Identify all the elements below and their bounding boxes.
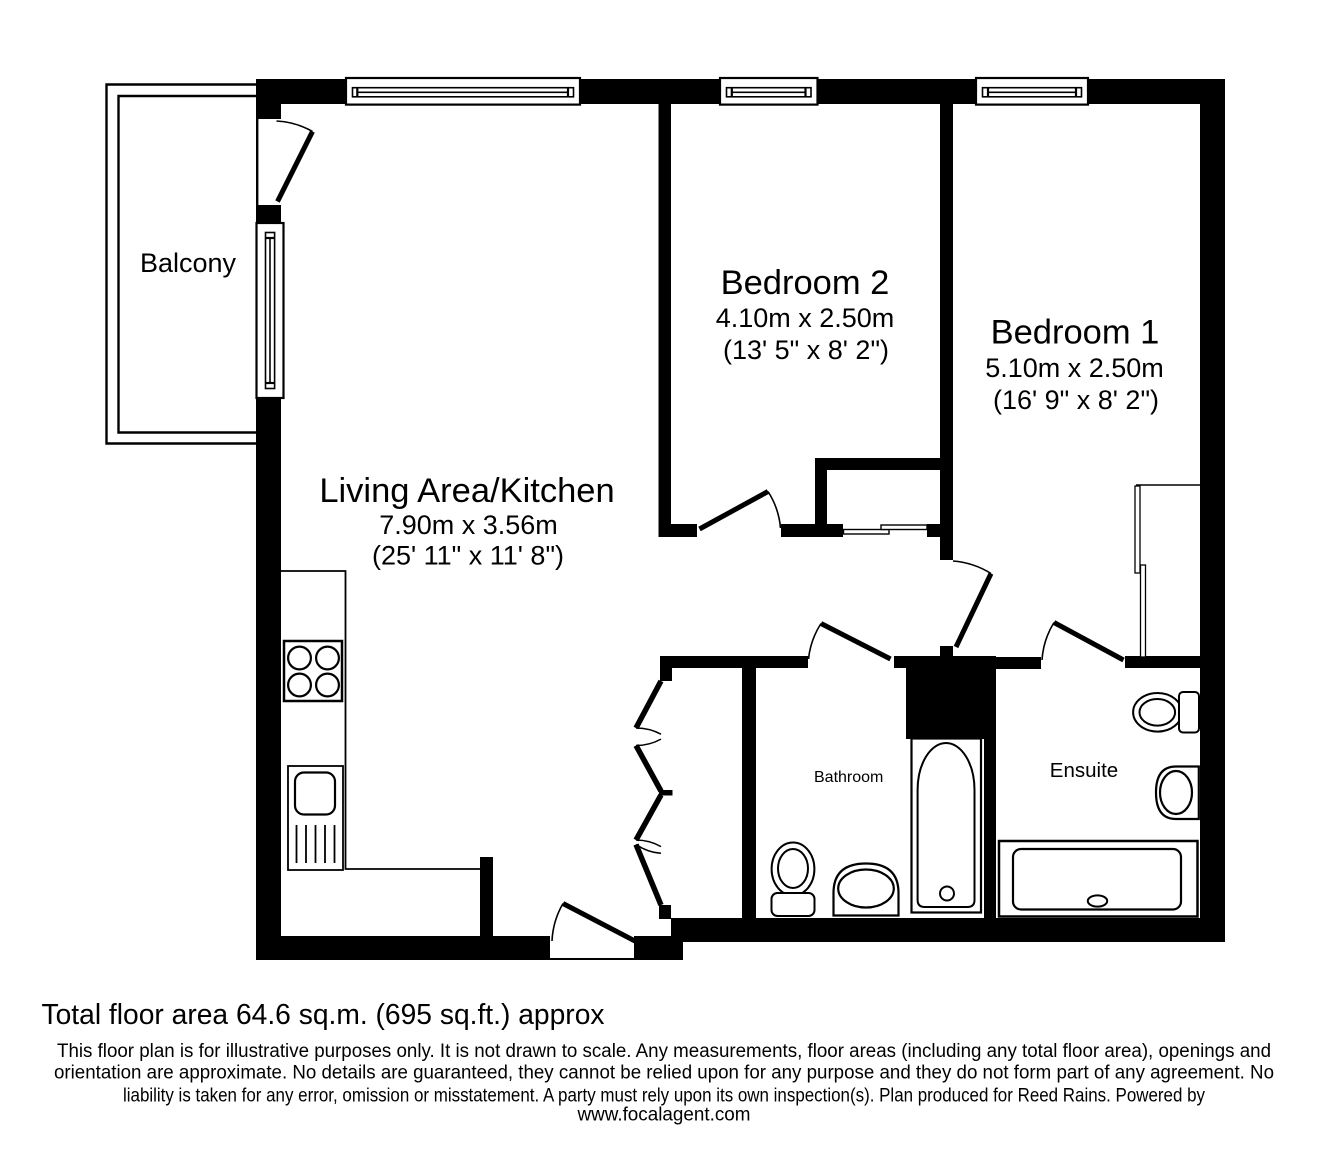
svg-text:5.10m x 2.50m: 5.10m x 2.50m: [985, 353, 1164, 383]
svg-text:(13' 5" x 8' 2"): (13' 5" x 8' 2"): [723, 335, 889, 365]
svg-text:This floor plan is for illustr: This floor plan is for illustrative purp…: [57, 1041, 1271, 1062]
svg-text:www.focalagent.com: www.focalagent.com: [577, 1105, 751, 1126]
svg-text:liability is taken for any err: liability is taken for any error, omissi…: [123, 1085, 1205, 1106]
svg-text:Living Area/Kitchen: Living Area/Kitchen: [319, 472, 614, 510]
svg-text:4.10m x 2.50m: 4.10m x 2.50m: [716, 303, 895, 333]
svg-text:Ensuite: Ensuite: [1050, 759, 1118, 782]
svg-text:7.90m x 3.56m: 7.90m x 3.56m: [379, 510, 558, 540]
svg-text:(25' 11" x 11' 8"): (25' 11" x 11' 8"): [372, 541, 564, 571]
svg-text:(16' 9" x 8' 2"): (16' 9" x 8' 2"): [993, 385, 1159, 415]
svg-text:Total floor area 64.6 sq.m. (6: Total floor area 64.6 sq.m. (695 sq.ft.)…: [42, 999, 605, 1031]
svg-text:Bedroom 2: Bedroom 2: [721, 264, 890, 302]
svg-text:orientation are approximate. N: orientation are approximate. No details …: [54, 1063, 1274, 1084]
svg-text:Bedroom 1: Bedroom 1: [991, 314, 1160, 352]
svg-text:Bathroom: Bathroom: [814, 769, 883, 786]
svg-text:Balcony: Balcony: [140, 248, 237, 278]
